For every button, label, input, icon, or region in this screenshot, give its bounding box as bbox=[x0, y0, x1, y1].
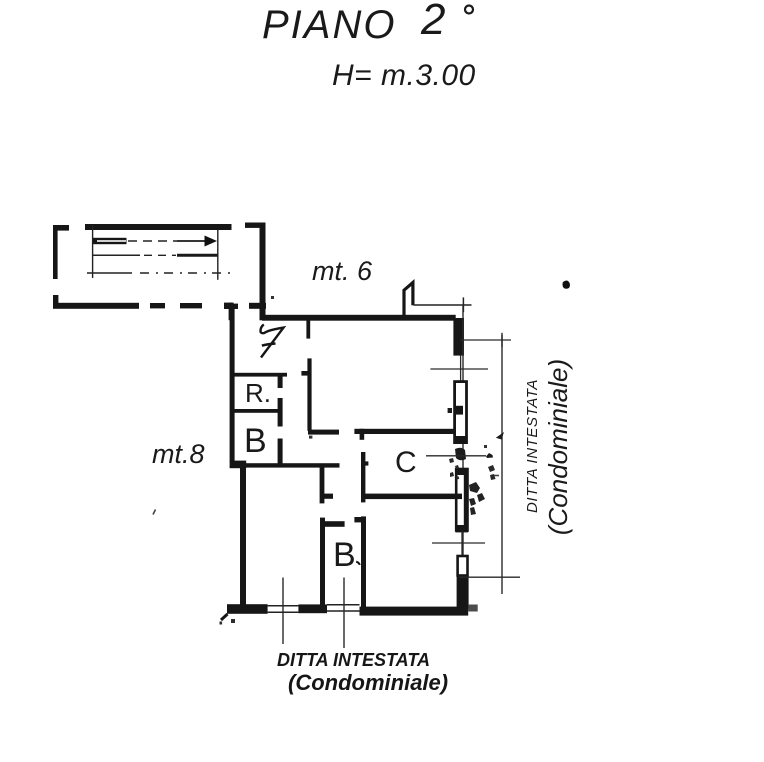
svg-text:(Condominiale): (Condominiale) bbox=[288, 670, 448, 695]
svg-text:(Condominiale): (Condominiale) bbox=[543, 359, 573, 535]
svg-text:DITTA INTESTATA: DITTA INTESTATA bbox=[277, 650, 430, 670]
svg-text:PIANO: PIANO bbox=[262, 3, 396, 47]
svg-text:H= m.3.00: H= m.3.00 bbox=[332, 59, 476, 92]
svg-text:DITTA INTESTATA: DITTA INTESTATA bbox=[524, 379, 541, 513]
svg-text:B: B bbox=[333, 536, 356, 574]
svg-text:2: 2 bbox=[420, 0, 445, 44]
svg-text:C: C bbox=[395, 446, 417, 479]
svg-text:mt. 6: mt. 6 bbox=[312, 256, 373, 286]
svg-text:mt.8: mt.8 bbox=[152, 439, 205, 469]
svg-text:R.: R. bbox=[245, 378, 271, 408]
svg-text:B: B bbox=[244, 422, 267, 460]
